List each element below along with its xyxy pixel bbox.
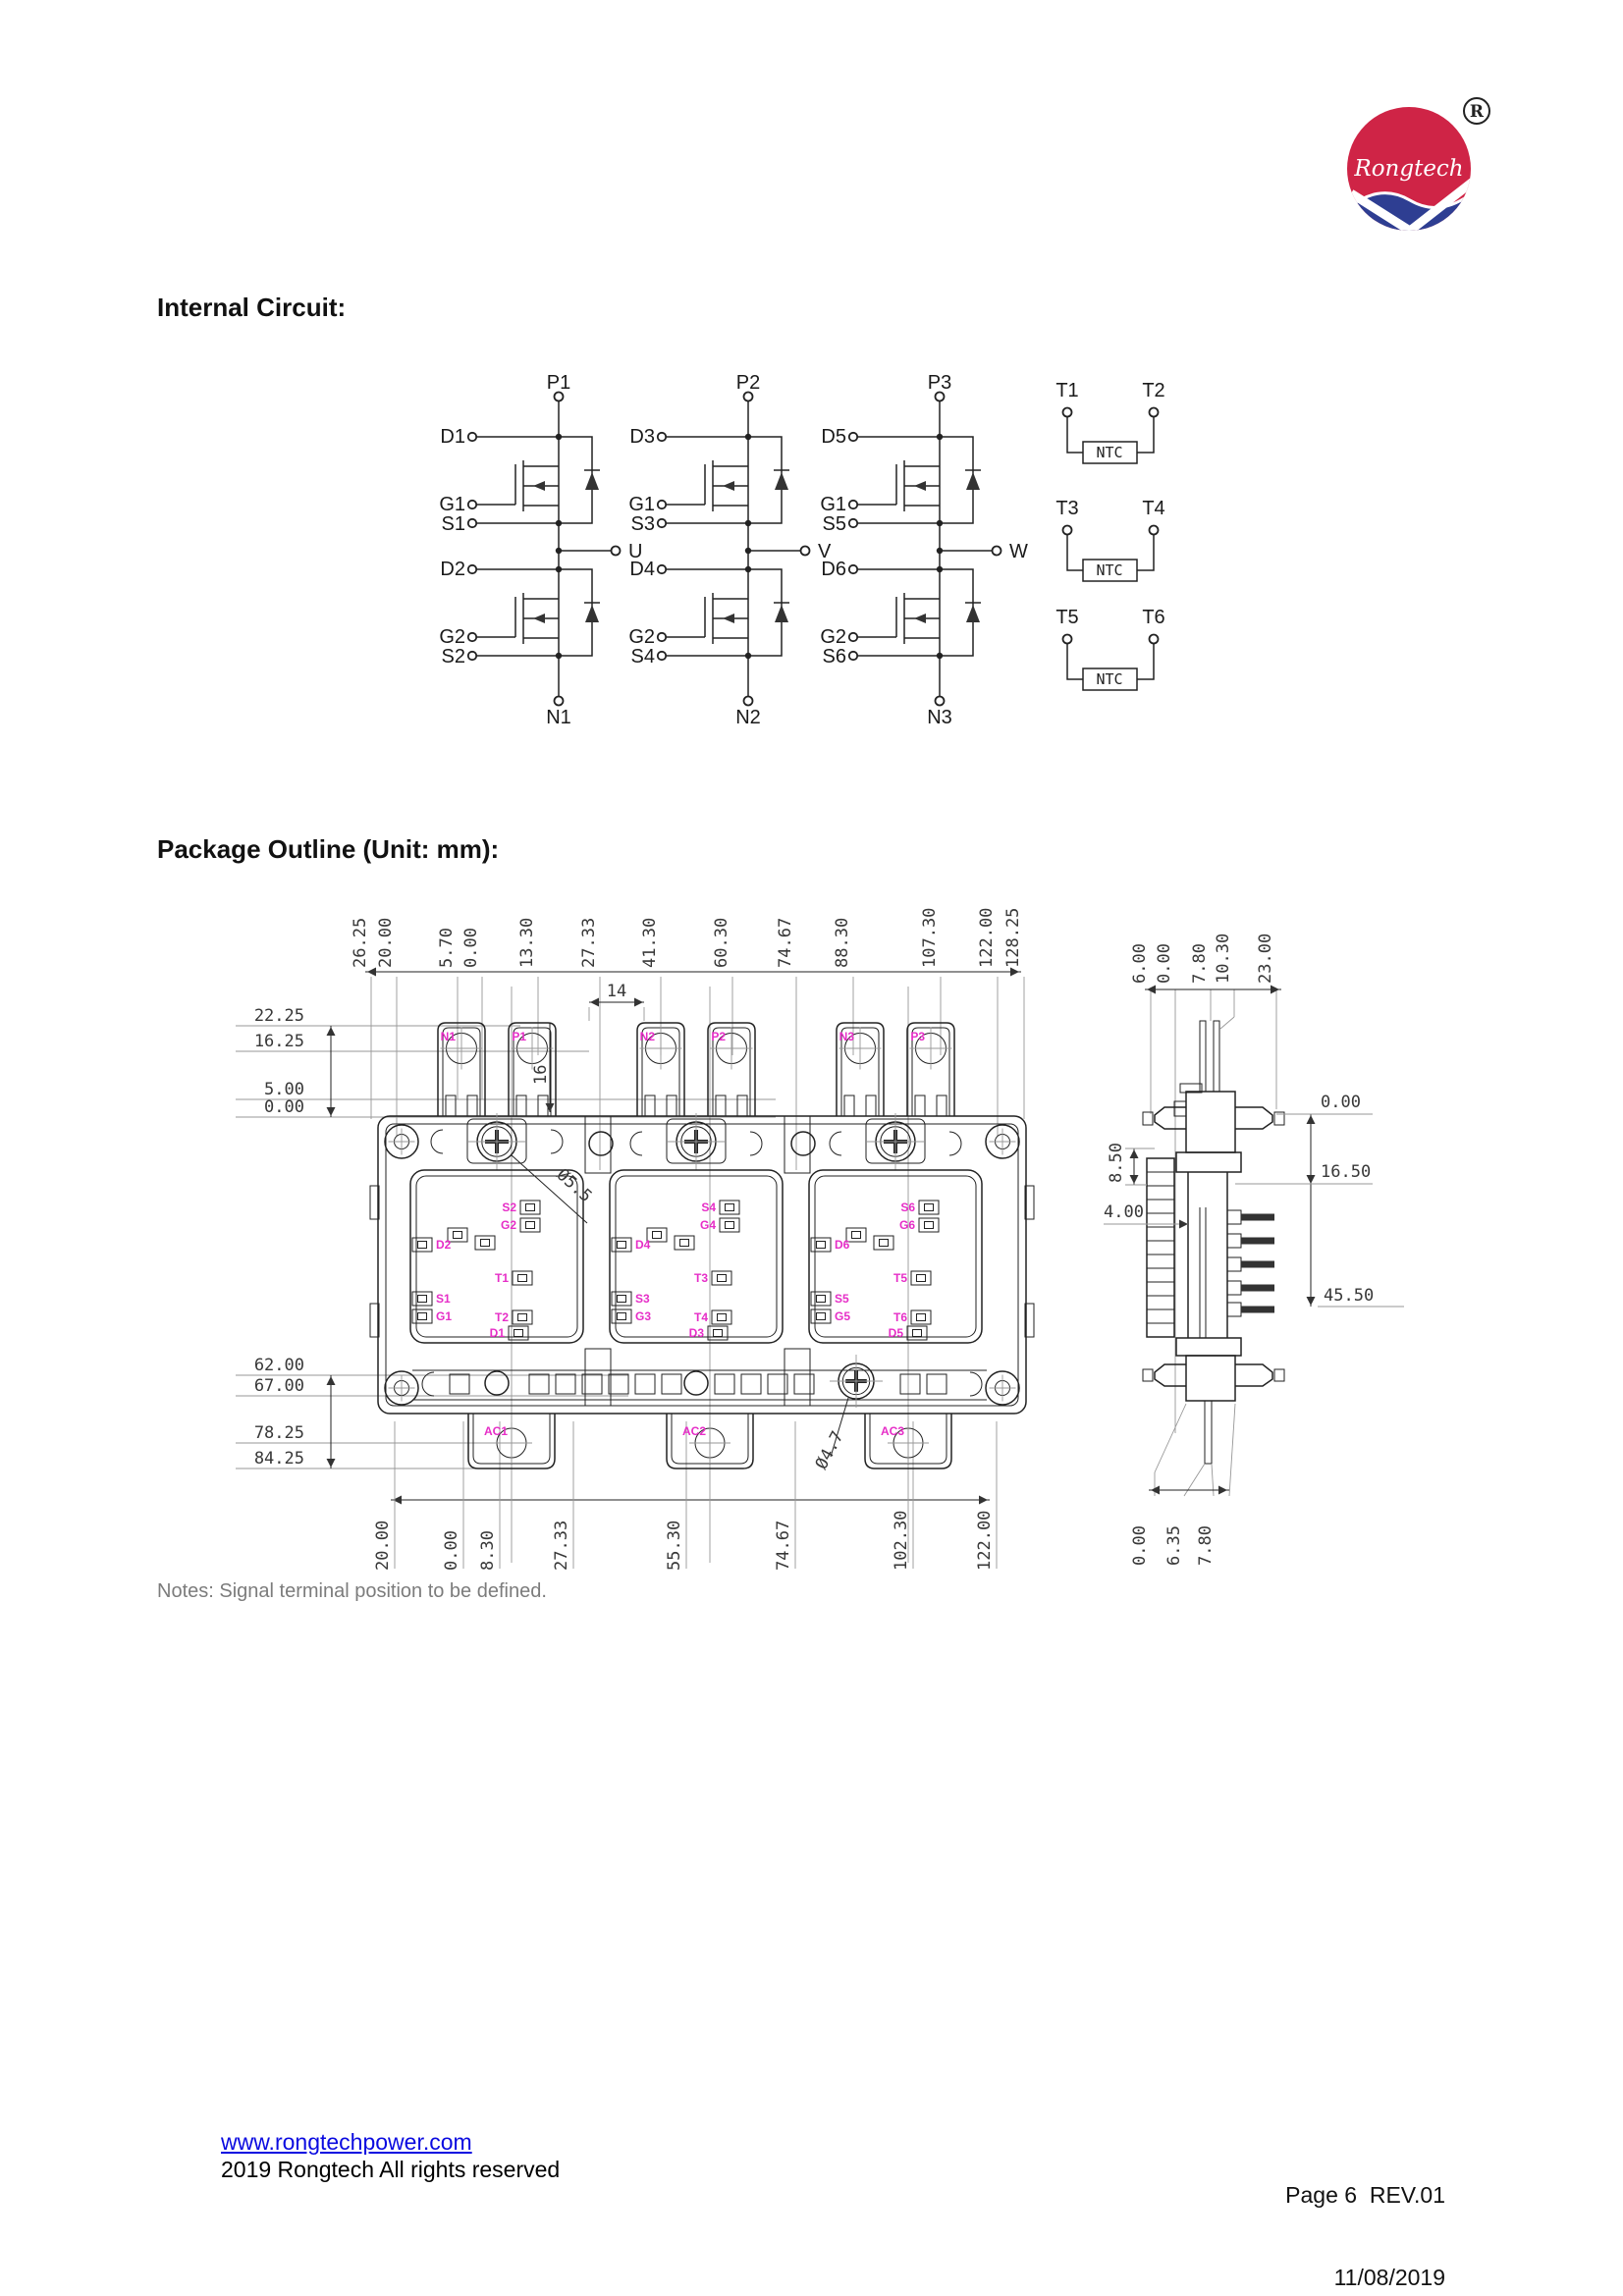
package-side-top_dims-1: 0.00 [1155, 943, 1174, 984]
package-section_labels-1-6: T4 [694, 1310, 708, 1324]
package-section_labels-2-3: T5 [893, 1271, 907, 1285]
package-top_dims-12: 128.25 [1003, 908, 1023, 968]
circuit-ntc-pairs-1-0: T3 [1055, 498, 1078, 519]
circuit-ntc-pairs-0-0: T1 [1055, 380, 1078, 401]
package-left_dims_lower-1: 67.00 [254, 1376, 304, 1396]
package-side-left_dims-1: 4.00 [1104, 1202, 1144, 1222]
circuit-phases-1-s_bot: S4 [631, 646, 655, 667]
package-bottom_dims-3: 27.33 [552, 1521, 571, 1571]
package-dimensions: 26.2520.005.700.0013.3027.3341.3060.3074… [236, 908, 1024, 1571]
technical-drawing: P1D1G1S1UD2G2S2N1P2D3G1S3VD4G2S4N2P3D5G1… [0, 0, 1623, 2296]
circuit-phases-2-d_bot: D6 [821, 559, 846, 580]
circuit-phases-1-g_bot: G2 [628, 626, 655, 648]
package-left_dims_upper-0: 22.25 [254, 1006, 304, 1026]
package-section_labels-0-0: S2 [502, 1201, 516, 1214]
circuit-phases-0-p: P1 [547, 372, 570, 394]
circuit-phases-2-n: N3 [927, 707, 952, 728]
package-bottom_dims-1: 0.00 [442, 1530, 461, 1571]
circuit-ntc-label: NTC [1096, 670, 1122, 688]
package-left_dims_upper-2: 5.00 [264, 1080, 304, 1099]
package-section_labels-0-4: S1 [436, 1292, 451, 1306]
package-inline_dims-tab_width: 14 [607, 982, 626, 1001]
package-side-right_dims-2: 45.50 [1324, 1286, 1374, 1306]
package-top_dims-4: 13.30 [517, 918, 537, 968]
package-section_labels-1-3: T3 [694, 1271, 708, 1285]
package-tab_labels-0: N1 [441, 1030, 457, 1043]
circuit-phases-1-g_top: G1 [628, 494, 655, 515]
package-tab_labels-1: P1 [512, 1030, 526, 1043]
package-top_dims-5: 27.33 [579, 918, 599, 968]
circuit-phases-1-d_top: D3 [629, 426, 655, 448]
circuit-phases-2-out: W [1009, 541, 1028, 562]
package-side-top_dims-2: 7.80 [1190, 943, 1210, 984]
circuit-phases-1-n: N2 [735, 707, 761, 728]
package-section_labels-2-5: G5 [835, 1309, 850, 1323]
package-ac_labels-1: AC2 [682, 1424, 706, 1438]
package-section_labels-2-0: S6 [900, 1201, 915, 1214]
package-left_dims_lower-3: 84.25 [254, 1449, 304, 1468]
package-section_labels-2-2: D6 [835, 1238, 850, 1252]
ntc-circuit: T1T2NTCT3T4NTCT5T6NTC [1055, 380, 1164, 690]
circuit-phases-1-d_bot: D4 [629, 559, 655, 580]
package-side-left_dims-0: 8.50 [1107, 1143, 1126, 1183]
package-section_labels-2-1: G6 [899, 1218, 915, 1232]
package-side-bottom_dims-0: 0.00 [1130, 1525, 1150, 1566]
package-top_dims-1: 20.00 [376, 918, 396, 968]
circuit-ntc-pairs-2-0: T5 [1055, 607, 1078, 628]
package-section_labels-1-4: S3 [635, 1292, 650, 1306]
package-section_labels-1-5: G3 [635, 1309, 651, 1323]
package-tab_labels-2: N2 [640, 1030, 656, 1043]
circuit-phases-0-d_top: D1 [440, 426, 465, 448]
package-top_dims-0: 26.25 [351, 918, 370, 968]
datasheet-page: Rongtech R Internal Circuit: Package Out… [0, 0, 1623, 2296]
package-section_labels-0-3: T1 [495, 1271, 509, 1285]
internal-circuit-diagram: P1D1G1S1UD2G2S2N1P2D3G1S3VD4G2S4N2P3D5G1… [439, 372, 1028, 728]
package-side-right_dims-0: 0.00 [1321, 1093, 1361, 1112]
package-section_labels-1-1: G4 [700, 1218, 716, 1232]
circuit-phases-0-g_top: G1 [439, 494, 465, 515]
circuit-phases-0-n: N1 [546, 707, 571, 728]
circuit-phases-1-s_top: S3 [631, 513, 655, 535]
circuit-phases-2-s_top: S5 [823, 513, 846, 535]
package-top_dims-9: 88.30 [833, 918, 852, 968]
package-section_labels-0-2: D2 [436, 1238, 452, 1252]
package-ac_labels-0: AC1 [484, 1424, 508, 1438]
package-inline_dims-tab_height: 16 [531, 1065, 551, 1085]
package-bottom_dims-0: 20.00 [373, 1521, 393, 1571]
package-top_dims-6: 41.30 [640, 918, 660, 968]
package-side-top_dims-4: 23.00 [1256, 934, 1275, 984]
package-side-right_dims-1: 16.50 [1321, 1162, 1371, 1182]
package-top_dims-10: 107.30 [920, 908, 940, 968]
circuit-phases-2-s_bot: S6 [823, 646, 846, 667]
page-rev-text: Page 6 REV.01 [1285, 2181, 1445, 2209]
circuit-phases-2-g_top: G1 [820, 494, 846, 515]
circuit-phases-0-g_bot: G2 [439, 626, 465, 648]
package-top-view: N1P1N2P2N3P3S2G2D2T1S1G1T2D1S4G4D4T3S3G3… [370, 982, 1034, 1472]
circuit-ntc-pairs-1-1: T4 [1142, 498, 1164, 519]
package-top_dims-8: 74.67 [776, 918, 795, 968]
package-left_dims_upper-1: 16.25 [254, 1032, 304, 1051]
package-section_labels-2-6: T6 [893, 1310, 907, 1324]
circuit-phases-2-p: P3 [928, 372, 951, 394]
circuit-ntc-pairs-0-1: T2 [1142, 380, 1164, 401]
package-side-bottom_dims-1: 6.35 [1164, 1525, 1184, 1566]
package-top_dims-7: 60.30 [712, 918, 731, 968]
package-section_labels-2-4: S5 [835, 1292, 849, 1306]
copyright-text: 2019 Rongtech All rights reserved [221, 2156, 560, 2183]
circuit-ntc-label: NTC [1096, 444, 1122, 461]
package-section_labels-2-7: D5 [889, 1326, 904, 1340]
package-ac_labels-2: AC3 [881, 1424, 904, 1438]
package-inline_dims-pin_hole: Ø4.7 [812, 1428, 848, 1473]
circuit-ntc-label: NTC [1096, 561, 1122, 579]
website-link[interactable]: www.rongtechpower.com [221, 2128, 472, 2156]
package-side-bottom_dims-2: 7.80 [1196, 1525, 1216, 1566]
package-side-top_dims-3: 10.30 [1214, 934, 1233, 984]
circuit-phases-0-s_bot: S2 [442, 646, 465, 667]
package-bottom_dims-5: 74.67 [774, 1521, 793, 1571]
package-top_dims-3: 0.00 [461, 928, 481, 968]
package-section_labels-0-6: T2 [495, 1310, 509, 1324]
package-left_dims_lower-2: 78.25 [254, 1423, 304, 1443]
package-left_dims_upper-3: 0.00 [264, 1097, 304, 1117]
package-section_labels-1-2: D4 [635, 1238, 651, 1252]
package-bottom_dims-2: 8.30 [478, 1530, 498, 1571]
package-section_labels-0-7: D1 [490, 1326, 506, 1340]
package-tab_labels-4: N3 [839, 1030, 855, 1043]
package-side-view: 6.000.007.8010.3023.000.006.357.800.0016… [1104, 934, 1404, 1566]
circuit-phases-2-g_bot: G2 [820, 626, 846, 648]
date-text: 11/08/2019 [1285, 2264, 1445, 2291]
circuit-phases-0-d_bot: D2 [440, 559, 465, 580]
circuit-phases-2-d_top: D5 [821, 426, 846, 448]
package-bottom_dims-7: 122.00 [975, 1511, 995, 1571]
package-tab_labels-3: P2 [711, 1030, 726, 1043]
circuit-ntc-pairs-2-1: T6 [1142, 607, 1164, 628]
package-section_labels-1-0: S4 [701, 1201, 716, 1214]
package-tab_labels-5: P3 [910, 1030, 925, 1043]
package-section_labels-0-1: G2 [501, 1218, 516, 1232]
package-section_labels-1-7: D3 [689, 1326, 705, 1340]
package-top_dims-2: 5.70 [437, 928, 457, 968]
package-left_dims_lower-0: 62.00 [254, 1356, 304, 1375]
package-top_dims-11: 122.00 [977, 908, 997, 968]
circuit-phases-1-p: P2 [736, 372, 760, 394]
package-side-top_dims-0: 6.00 [1130, 943, 1150, 984]
package-section_labels-0-5: G1 [436, 1309, 452, 1323]
package-bottom_dims-4: 55.30 [665, 1521, 684, 1571]
circuit-phases-0-s_top: S1 [442, 513, 465, 535]
